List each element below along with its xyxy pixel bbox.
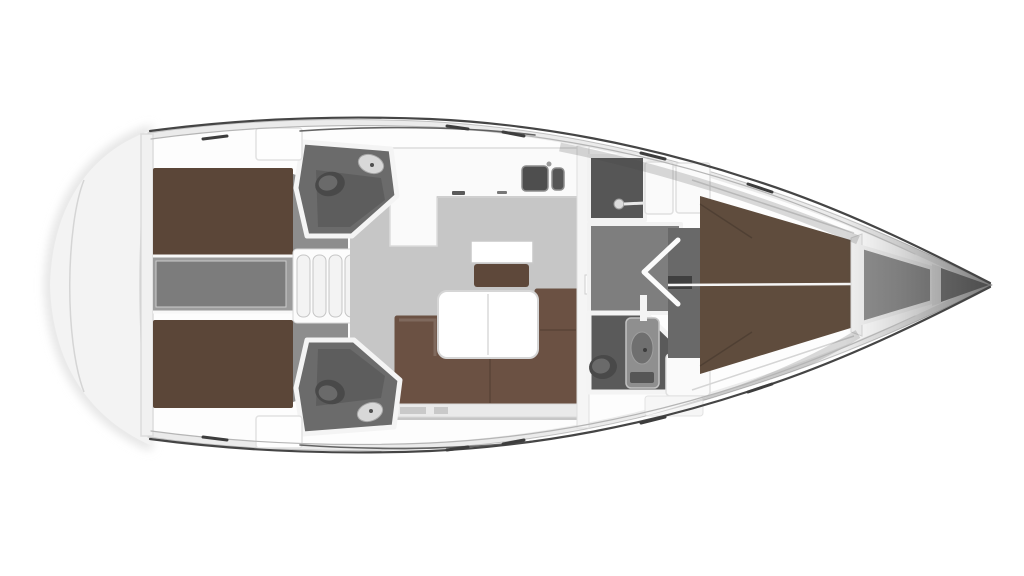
vanity-drawer (630, 372, 654, 383)
galley-sink (522, 166, 548, 191)
stair-tread (313, 255, 326, 317)
shower-head-icon (614, 199, 624, 209)
galley-sink-small (552, 168, 564, 190)
aft-cabin-starboard-bed (153, 320, 293, 408)
stair-tread (329, 255, 342, 317)
door-jamb (640, 295, 647, 321)
deck-hatch (256, 128, 302, 160)
chart-table (471, 241, 533, 263)
engine-hatch (156, 261, 286, 307)
sink-drain (370, 163, 374, 167)
shower-arm (624, 203, 645, 204)
yacht-floor-plan (0, 0, 1024, 576)
aft-cabin-port-bed (153, 168, 293, 256)
stern-wall (141, 134, 153, 436)
forward-corridor-floor (589, 224, 681, 313)
sink-drain (369, 409, 373, 413)
transom (50, 130, 152, 446)
counter-handle (497, 191, 507, 194)
floor-plan-svg (0, 0, 1024, 576)
stove-handle (452, 191, 465, 195)
stair-tread (297, 255, 310, 317)
basin-drain (643, 348, 647, 352)
galley-faucet (547, 162, 552, 167)
berth-centerline (668, 284, 854, 285)
vanity-basin (631, 332, 653, 364)
drawer (400, 407, 426, 414)
drawer (434, 407, 448, 414)
door-step (668, 276, 692, 289)
nav-station (471, 241, 533, 287)
nav-seat (474, 264, 529, 287)
